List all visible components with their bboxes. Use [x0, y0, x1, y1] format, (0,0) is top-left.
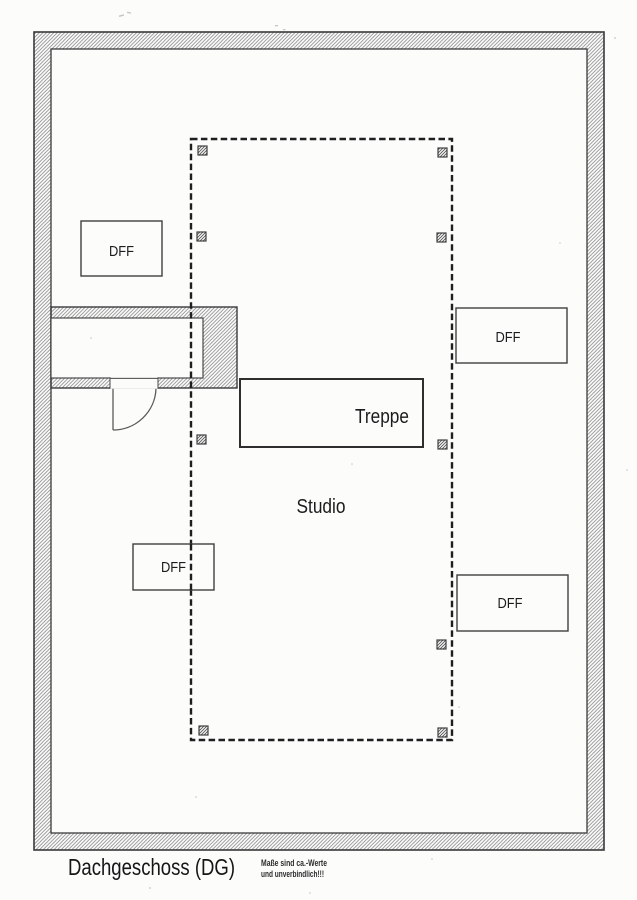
stairs-label: Treppe: [355, 406, 409, 428]
post-marker: [199, 726, 208, 735]
plan-disclaimer-line2: und unverbindlich!!!: [261, 869, 324, 879]
floorplan-page: Treppe Studio DFF DFF DFF DFF Dachgescho…: [0, 0, 637, 900]
plan-disclaimer-line1: Maße sind ca.-Werte: [261, 858, 327, 868]
protrusion-interior: [51, 318, 203, 378]
roof-window-label-top-left: DFF: [109, 244, 134, 260]
roof-window-label-right-lower: DFF: [498, 596, 523, 612]
wall-protrusion: [51, 307, 237, 430]
door-opening: [110, 377, 158, 389]
post-marker: [438, 148, 447, 157]
roof-window-label-right-upper: DFF: [496, 330, 521, 346]
post-marker: [438, 728, 447, 737]
post-marker: [437, 640, 446, 649]
post-marker: [198, 146, 207, 155]
post-marker: [197, 232, 206, 241]
scan-noise: [90, 12, 628, 894]
stairs: Treppe: [240, 379, 423, 447]
floor-plan-drawing: Treppe Studio DFF DFF DFF DFF Dachgescho…: [0, 0, 637, 900]
post-marker: [437, 233, 446, 242]
studio-room-label: Studio: [297, 496, 346, 518]
plan-title: Dachgeschoss (DG): [68, 854, 235, 880]
post-marker: [197, 435, 206, 444]
door-swing: [113, 389, 156, 430]
roof-window-label-left-middle: DFF: [161, 560, 186, 576]
post-marker: [438, 440, 447, 449]
